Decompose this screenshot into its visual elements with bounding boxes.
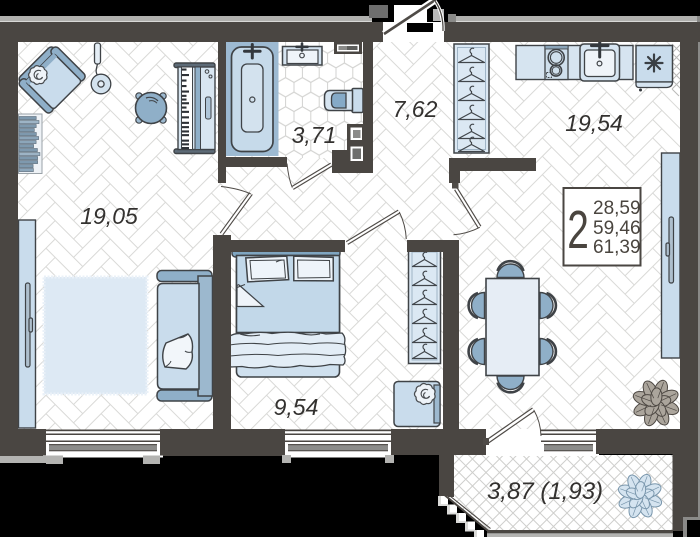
svg-text:3,71: 3,71 xyxy=(292,122,337,148)
svg-text:9,54: 9,54 xyxy=(274,394,319,420)
svg-text:28,59: 28,59 xyxy=(593,198,641,219)
svg-text:59,46: 59,46 xyxy=(593,218,641,239)
svg-text:19,54: 19,54 xyxy=(565,110,623,136)
svg-text:7,62: 7,62 xyxy=(393,96,438,122)
svg-text:19,05: 19,05 xyxy=(80,203,138,229)
svg-text:61,39: 61,39 xyxy=(593,237,641,258)
svg-text:3,87 (1,93): 3,87 (1,93) xyxy=(487,478,603,505)
svg-text:2: 2 xyxy=(567,199,589,260)
